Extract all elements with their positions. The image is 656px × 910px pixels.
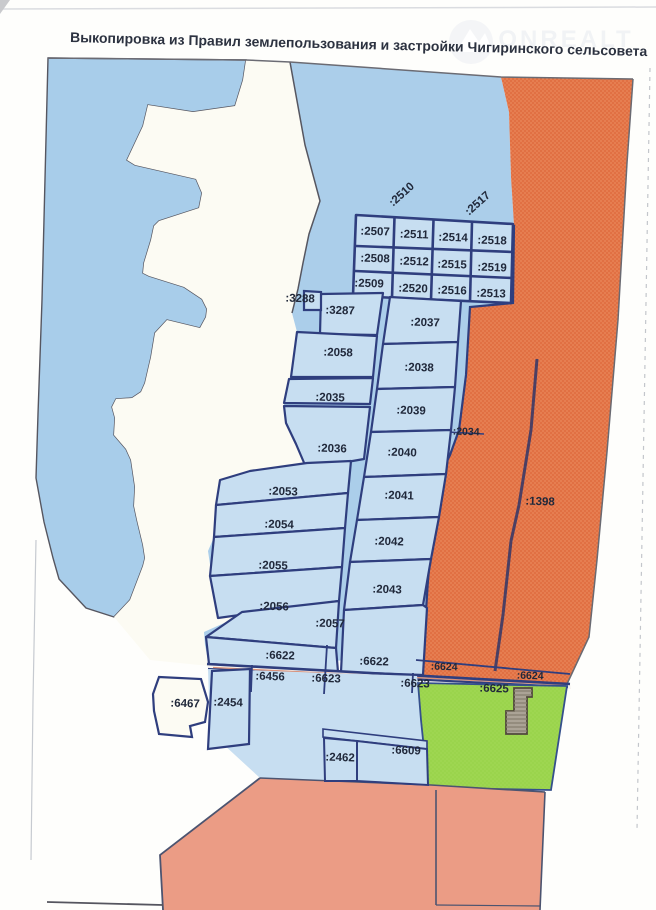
svg-text::2041: :2041 — [384, 489, 414, 502]
svg-text::6623: :6623 — [400, 677, 430, 690]
svg-text::2043: :2043 — [372, 583, 402, 596]
svg-text::2462: :2462 — [325, 751, 355, 764]
svg-text::2056: :2056 — [259, 600, 289, 613]
svg-text::2038: :2038 — [404, 361, 434, 374]
svg-text::2058: :2058 — [323, 346, 353, 359]
svg-text::2512: :2512 — [399, 255, 429, 268]
svg-text::6609: :6609 — [391, 744, 421, 757]
svg-text::6622: :6622 — [359, 655, 389, 668]
svg-text::2520: :2520 — [398, 282, 428, 295]
svg-text::2513: :2513 — [476, 287, 506, 300]
svg-text::2509: :2509 — [354, 277, 384, 290]
svg-text::2508: :2508 — [360, 252, 390, 265]
svg-text::2514: :2514 — [438, 231, 468, 244]
svg-text::6622: :6622 — [265, 649, 295, 662]
svg-text::6624: :6624 — [430, 661, 457, 674]
svg-text::6456: :6456 — [255, 670, 285, 683]
svg-text::2036: :2036 — [317, 442, 347, 455]
svg-text::2507: :2507 — [360, 225, 390, 238]
svg-text::3287: :3287 — [325, 304, 355, 317]
svg-text::2057: :2057 — [315, 617, 345, 630]
svg-text::2042: :2042 — [374, 535, 404, 548]
svg-text::2053: :2053 — [268, 485, 298, 498]
svg-text::3288: :3288 — [285, 292, 315, 305]
svg-text::2054: :2054 — [264, 518, 294, 531]
svg-text::2511: :2511 — [400, 229, 430, 242]
svg-text::2037: :2037 — [410, 316, 440, 329]
svg-text::6624: :6624 — [516, 670, 543, 683]
svg-text::2454: :2454 — [213, 696, 243, 709]
svg-text::2515: :2515 — [437, 258, 467, 271]
svg-text::2034: :2034 — [452, 426, 479, 439]
svg-text::2055: :2055 — [258, 559, 288, 572]
svg-text::6467: :6467 — [170, 697, 200, 710]
svg-text::2040: :2040 — [387, 446, 417, 459]
svg-text::2518: :2518 — [477, 234, 507, 247]
svg-text::2519: :2519 — [477, 261, 507, 274]
svg-text::6625: :6625 — [479, 682, 509, 695]
svg-text::2516: :2516 — [437, 284, 467, 297]
svg-text::1398: :1398 — [525, 495, 555, 508]
svg-text::6623: :6623 — [311, 672, 341, 685]
svg-text::2035: :2035 — [315, 391, 345, 404]
svg-text::2039: :2039 — [396, 404, 426, 417]
